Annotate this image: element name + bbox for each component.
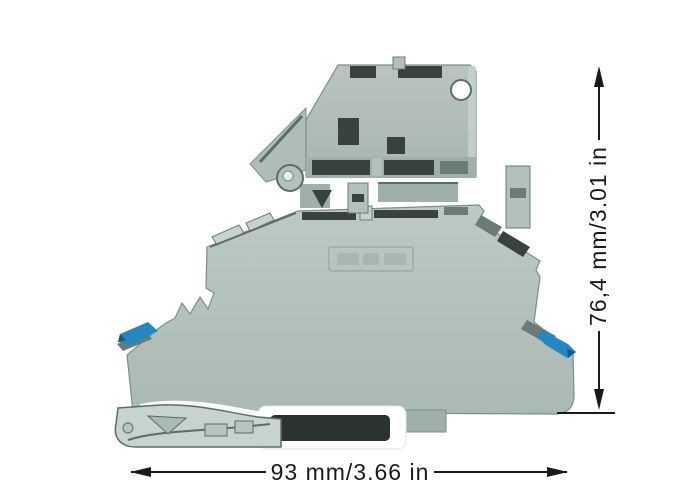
rail-band <box>270 415 390 441</box>
test-tap-hole <box>451 80 471 100</box>
arrow-left-icon <box>130 467 151 477</box>
terminal-body <box>127 205 574 414</box>
din-rail <box>258 406 446 449</box>
hinge-pin-hole <box>283 171 293 181</box>
fuse-holder <box>250 57 530 228</box>
right-support-slot <box>510 188 526 198</box>
diagram-canvas: 76,4 mm/3.01 in 93 mm/3.66 in <box>0 0 697 496</box>
arrow-down-icon <box>594 389 604 410</box>
fuse-base-slot <box>312 160 370 175</box>
embossed-marking <box>337 253 359 265</box>
arrow-up-icon <box>594 66 604 87</box>
fuse-base-divider <box>372 158 382 176</box>
height-dimension-label: 76,4 mm/3.01 in <box>585 146 611 326</box>
fuse-base-slot <box>440 161 468 174</box>
embossed-marking <box>363 253 379 265</box>
foot-cutout <box>235 421 253 433</box>
fuse-top-tab <box>393 57 405 69</box>
center-latch-slot <box>352 194 364 202</box>
fuse-base-slot <box>384 160 434 175</box>
fuse-window <box>338 118 359 145</box>
product-dimension-diagram: 76,4 mm/3.01 in 93 mm/3.66 in <box>0 0 697 496</box>
fuse-window-small <box>387 137 405 154</box>
fuse-top-slot <box>350 66 376 78</box>
width-dimension-label: 93 mm/3.66 in <box>271 459 430 485</box>
arrow-right-icon <box>547 467 568 477</box>
width-dimension: 93 mm/3.66 in <box>130 459 568 485</box>
foot-pivot <box>123 423 133 433</box>
embossed-marking <box>384 253 406 265</box>
top-slot <box>374 210 438 218</box>
mid-deck <box>378 182 458 202</box>
top-slot <box>444 207 468 215</box>
foot-cutout <box>205 424 227 436</box>
